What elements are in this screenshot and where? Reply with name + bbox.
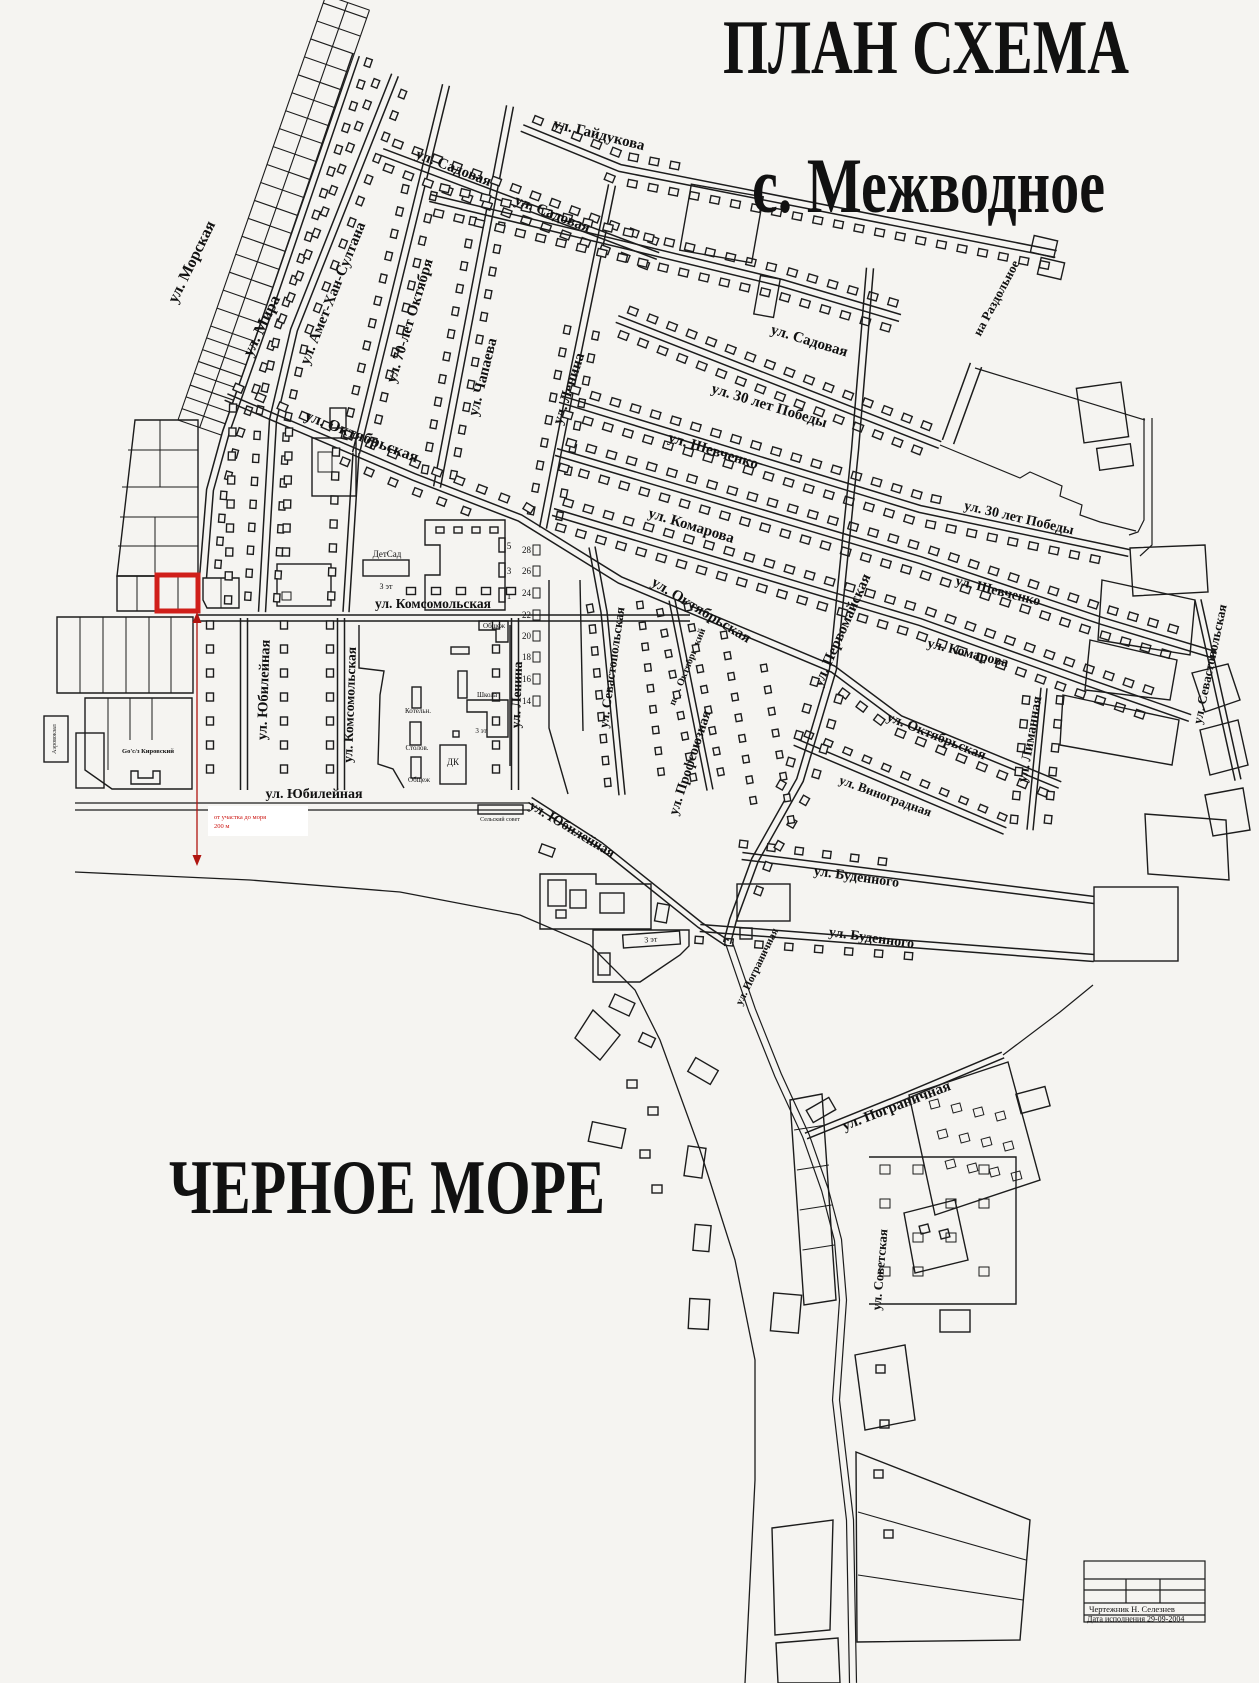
svg-text:5: 5 — [507, 541, 512, 551]
svg-text:с. Межводное: с. Межводное — [752, 142, 1105, 229]
svg-text:Столов.: Столов. — [406, 744, 429, 752]
svg-text:16: 16 — [522, 674, 532, 684]
svg-text:Общеж: Общеж — [408, 776, 430, 784]
svg-text:28: 28 — [522, 545, 532, 555]
svg-text:3 эт: 3 эт — [380, 582, 393, 591]
svg-text:3 эт: 3 эт — [644, 935, 658, 945]
svg-text:ЧЕРНОЕ МОРЕ: ЧЕРНОЕ МОРЕ — [169, 1144, 605, 1230]
svg-text:Go'c/з Кировский: Go'c/з Кировский — [122, 748, 174, 755]
svg-text:22: 22 — [522, 610, 531, 620]
svg-text:3: 3 — [507, 566, 512, 576]
svg-text:ул. Юбилейная: ул. Юбилейная — [265, 787, 363, 802]
svg-text:от участка до моря: от участка до моря — [214, 814, 266, 821]
svg-text:Аэровокзал: Аэровокзал — [52, 724, 58, 754]
svg-text:200 м: 200 м — [214, 823, 230, 830]
svg-text:20: 20 — [522, 631, 532, 641]
svg-text:3 эт: 3 эт — [475, 727, 486, 735]
svg-text:Котельн.: Котельн. — [405, 707, 431, 715]
svg-text:Общеж: Общеж — [483, 622, 505, 630]
svg-text:ПЛАН СХЕМА: ПЛАН СХЕМА — [723, 4, 1129, 90]
svg-text:Дата исполнения 29-09-2004: Дата исполнения 29-09-2004 — [1087, 1615, 1184, 1624]
svg-text:26: 26 — [522, 566, 532, 576]
svg-text:18: 18 — [522, 652, 532, 662]
svg-text:ул. Комсомольская: ул. Комсомольская — [375, 596, 491, 611]
svg-text:24: 24 — [522, 588, 532, 598]
svg-text:Школа: Школа — [477, 691, 498, 699]
svg-text:ДК: ДК — [447, 757, 460, 767]
svg-text:Сельский совет: Сельский совет — [480, 816, 520, 823]
svg-text:Чертежник Н. Селезнев: Чертежник Н. Селезнев — [1089, 1604, 1175, 1614]
svg-text:14: 14 — [522, 696, 532, 706]
svg-text:ДетСад: ДетСад — [373, 549, 402, 559]
